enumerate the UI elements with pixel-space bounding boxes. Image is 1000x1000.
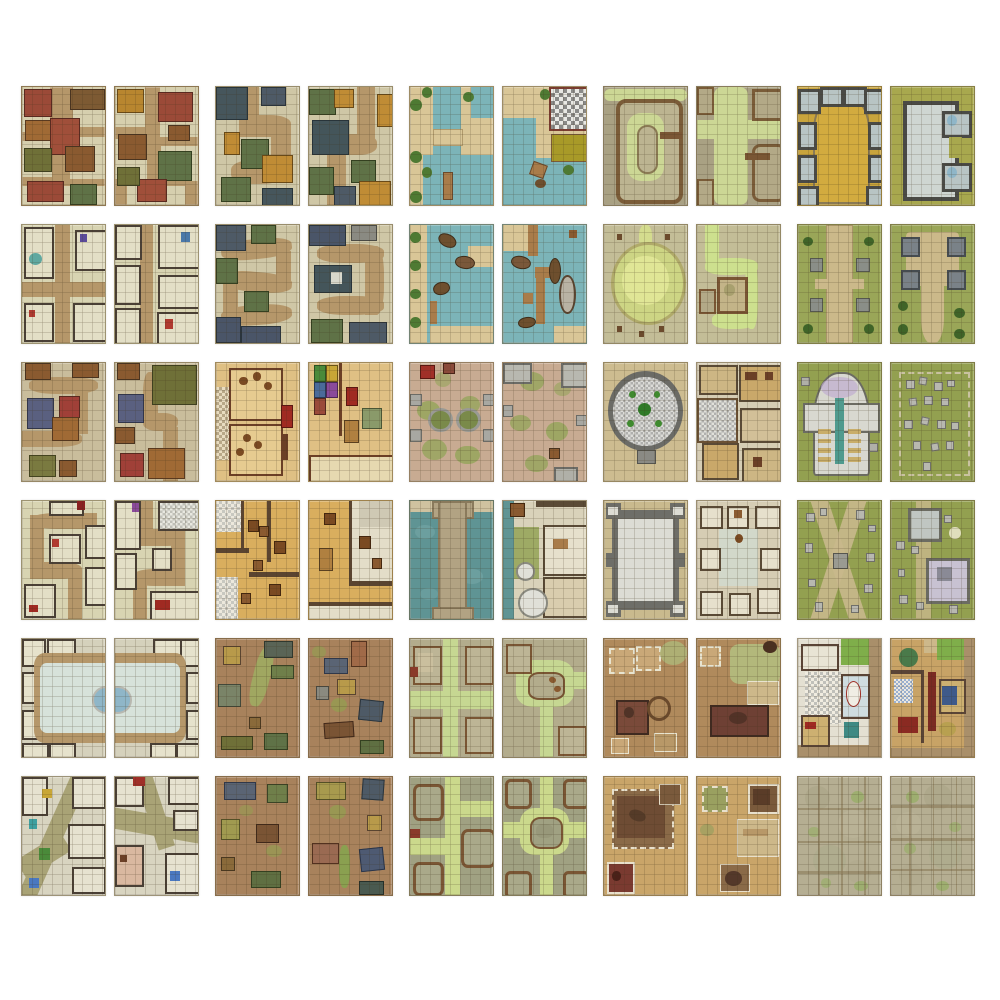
map-feature	[549, 258, 561, 284]
map-feature	[503, 501, 514, 619]
map-feature	[798, 841, 881, 843]
map-feature	[117, 89, 144, 112]
map-feature	[801, 715, 830, 747]
map-feature	[170, 871, 180, 880]
map-feature	[359, 181, 391, 206]
map-feature	[916, 602, 924, 610]
map-feature	[954, 329, 965, 340]
tile-r3c4-round-arena-right-panel	[696, 362, 781, 482]
map-feature	[216, 501, 241, 532]
tile-r5c4-ruined-farmstead	[603, 638, 781, 758]
map-feature	[760, 548, 781, 571]
map-feature	[80, 234, 87, 241]
tile-r2c1-town-interiors	[21, 224, 199, 344]
tile-r4c2-warehouse-right-panel	[308, 500, 393, 620]
map-feature	[422, 439, 447, 460]
map-feature	[241, 593, 251, 604]
map-feature	[901, 270, 920, 291]
tile-r6c4-sand-ruins	[603, 776, 781, 896]
map-feature	[798, 808, 881, 810]
map-feature	[740, 408, 781, 443]
map-feature	[700, 506, 722, 529]
map-feature	[891, 670, 924, 675]
tile-r4c5-graveyard-mausoleums	[797, 500, 975, 620]
map-feature	[569, 230, 576, 238]
map-feature	[436, 231, 458, 251]
map-feature	[326, 365, 338, 381]
map-feature	[702, 443, 739, 480]
map-feature	[117, 167, 141, 186]
map-feature	[700, 591, 722, 616]
tile-r6c4-sand-ruins-right-panel	[696, 776, 781, 896]
map-feature	[410, 151, 422, 163]
map-feature	[506, 644, 532, 674]
map-feature	[377, 94, 393, 127]
map-feature	[249, 717, 261, 730]
map-feature	[339, 845, 351, 887]
tile-grid	[21, 86, 975, 896]
map-feature	[241, 326, 281, 344]
map-feature	[896, 541, 905, 550]
map-feature	[239, 377, 247, 385]
tile-r2c3-dockyard	[409, 224, 587, 344]
map-feature	[461, 829, 494, 868]
map-feature	[536, 501, 586, 507]
map-feature	[465, 717, 494, 754]
map-feature	[264, 641, 293, 657]
map-feature	[821, 878, 831, 887]
map-feature	[262, 155, 292, 183]
tile-r1c3-canal-quarter-right-panel	[502, 86, 587, 206]
map-feature	[554, 326, 586, 343]
map-feature	[410, 260, 421, 271]
map-feature	[334, 186, 356, 206]
map-feature	[118, 394, 143, 423]
map-feature	[673, 605, 683, 613]
map-feature	[115, 427, 135, 444]
map-feature	[186, 710, 199, 740]
tile-r1c3-canal-quarter-left-panel	[409, 86, 494, 206]
map-feature	[269, 584, 281, 597]
map-feature	[309, 167, 334, 195]
map-feature	[609, 648, 635, 673]
map-feature	[848, 439, 861, 444]
tile-r2c2-serpentine-street	[215, 224, 393, 344]
map-feature	[413, 717, 442, 754]
map-feature	[904, 420, 913, 429]
map-feature	[909, 777, 911, 895]
map-feature	[869, 639, 881, 757]
map-feature	[868, 525, 876, 533]
tile-r2c4-cavern-pool-right-panel	[696, 224, 781, 344]
map-feature	[115, 308, 141, 344]
tile-r5c2-dirt-hamlet-left-panel	[215, 638, 300, 758]
map-feature	[606, 553, 616, 567]
tile-r6c1-mossy-crossroads	[21, 776, 199, 896]
map-feature	[947, 237, 966, 258]
map-feature	[798, 89, 821, 114]
map-feature	[528, 225, 538, 256]
map-feature	[68, 572, 81, 619]
map-feature	[510, 415, 532, 432]
map-feature	[267, 784, 287, 803]
map-feature	[271, 665, 295, 679]
map-feature	[851, 791, 864, 803]
map-feature	[801, 644, 838, 672]
map-feature	[281, 434, 288, 460]
map-feature	[410, 838, 447, 855]
tile-r3c2-tavern-inn-right-panel	[308, 362, 393, 482]
tile-r2c5-statue-garden-right-panel	[890, 224, 975, 344]
map-feature	[898, 324, 909, 335]
map-feature	[697, 87, 714, 115]
map-feature	[624, 707, 634, 718]
map-feature	[85, 525, 106, 560]
map-feature	[563, 165, 574, 176]
map-feature	[72, 867, 106, 895]
tile-r1c5-temple-courtyard-right-panel	[890, 86, 975, 206]
map-feature	[946, 441, 955, 450]
tile-r6c1-mossy-crossroads-left-panel	[21, 776, 106, 896]
map-feature	[443, 172, 453, 200]
map-feature	[372, 558, 382, 569]
map-feature	[947, 380, 955, 388]
map-feature	[856, 510, 865, 519]
map-feature	[558, 726, 587, 756]
map-feature	[697, 120, 780, 139]
map-feature	[259, 526, 269, 537]
map-feature	[29, 605, 38, 612]
map-feature	[158, 151, 192, 181]
map-feature	[714, 87, 749, 205]
map-feature	[505, 779, 533, 809]
tile-r4c1-town-interiors-curved	[21, 500, 199, 620]
tile-r3c2-tavern-inn-left-panel	[215, 362, 300, 482]
map-feature	[833, 553, 848, 569]
map-feature	[331, 698, 348, 712]
tile-r2c4-cavern-pool-left-panel	[603, 224, 688, 344]
map-feature	[942, 111, 971, 138]
map-feature	[432, 607, 474, 620]
map-feature	[810, 298, 824, 312]
map-feature	[410, 394, 422, 407]
tile-r5c5-manor-house	[797, 638, 975, 758]
map-feature	[158, 225, 199, 269]
map-feature	[152, 548, 173, 571]
map-feature	[559, 275, 575, 314]
map-feature	[627, 420, 634, 427]
map-feature	[251, 225, 276, 244]
map-feature	[806, 513, 815, 522]
map-feature	[413, 862, 444, 896]
map-feature	[763, 641, 776, 653]
map-feature	[432, 280, 451, 296]
map-feature	[29, 253, 42, 265]
map-feature	[765, 372, 773, 379]
map-feature	[803, 324, 813, 333]
map-feature	[410, 289, 421, 300]
tile-r1c5-temple-courtyard	[797, 86, 975, 206]
map-feature	[117, 363, 141, 380]
map-feature	[362, 408, 382, 429]
map-feature	[455, 446, 480, 465]
map-feature	[157, 312, 200, 344]
tile-r1c3-canal-quarter	[409, 86, 587, 206]
map-feature	[216, 577, 238, 619]
tile-r2c5-statue-garden-left-panel	[797, 224, 882, 344]
map-feature	[675, 553, 685, 567]
map-feature	[344, 420, 359, 443]
tile-r1c2-town-green-gold-roofs-right-panel	[308, 86, 393, 206]
map-feature	[312, 843, 339, 864]
map-feature	[894, 679, 912, 703]
map-feature	[216, 258, 238, 284]
map-feature	[165, 319, 173, 328]
map-feature	[729, 712, 747, 724]
map-feature	[921, 282, 944, 343]
map-feature	[253, 372, 261, 380]
map-feature	[712, 312, 755, 329]
map-feature	[942, 163, 971, 193]
map-feature	[221, 736, 253, 750]
map-feature	[820, 87, 844, 107]
map-feature	[798, 871, 881, 873]
map-feature	[848, 448, 861, 453]
map-feature	[608, 507, 618, 515]
map-feature	[617, 234, 622, 240]
map-feature	[757, 588, 781, 613]
tile-r4c1-town-interiors-curved-right-panel	[114, 500, 199, 620]
map-feature	[637, 450, 656, 464]
tile-r5c1-plaza-fountain	[21, 638, 199, 758]
map-feature	[309, 225, 346, 246]
map-feature	[608, 605, 618, 613]
map-feature	[868, 122, 882, 149]
tile-r1c1-town-red-roofs-left-panel	[21, 86, 106, 206]
map-feature	[629, 391, 636, 398]
map-feature	[660, 641, 687, 665]
map-feature	[864, 777, 866, 895]
map-feature	[256, 824, 280, 843]
map-feature	[841, 639, 869, 665]
map-feature	[410, 829, 420, 838]
tile-r4c5-graveyard-mausoleums-right-panel	[890, 500, 975, 620]
tile-r3c1-town-mixed-roofs-left-panel	[21, 362, 106, 482]
map-feature	[851, 605, 859, 613]
tile-r4c1-town-interiors-curved-left-panel	[21, 500, 106, 620]
map-feature	[173, 810, 199, 831]
map-feature	[430, 326, 493, 343]
map-feature	[700, 824, 713, 836]
map-feature	[314, 382, 326, 398]
tile-r3c3-ruined-street	[409, 362, 587, 482]
map-feature	[540, 89, 551, 100]
map-feature	[745, 372, 757, 379]
map-feature	[517, 316, 536, 330]
map-feature	[463, 92, 474, 103]
map-feature	[420, 588, 438, 600]
tile-r6c5-flagstone-field-left-panel	[797, 776, 882, 896]
map-feature	[954, 308, 965, 319]
map-feature	[264, 733, 288, 749]
map-feature	[866, 553, 875, 562]
map-feature	[458, 801, 493, 818]
map-feature	[908, 508, 942, 542]
map-feature	[951, 422, 959, 430]
map-feature	[72, 363, 99, 378]
map-feature	[540, 850, 553, 895]
map-feature	[798, 155, 817, 182]
map-feature	[316, 686, 330, 700]
tile-r6c3-sewer-octagon-left-panel	[409, 776, 494, 896]
map-feature	[410, 191, 422, 203]
tile-r5c1-plaza-fountain-left-panel	[21, 638, 106, 758]
map-feature	[52, 539, 59, 547]
map-feature	[218, 684, 242, 707]
map-feature	[317, 296, 383, 315]
map-feature	[435, 372, 452, 386]
map-feature	[805, 722, 817, 729]
map-feature	[158, 275, 199, 310]
tile-r5c3-sewer-cross-left-panel	[409, 638, 494, 758]
map-feature	[150, 743, 177, 758]
tile-r3c4-round-arena-left-panel	[603, 362, 688, 482]
sheet-title: battle-map-tile-sheet	[0, 21, 1, 22]
map-feature	[930, 443, 939, 452]
map-feature	[569, 672, 586, 689]
map-feature	[525, 455, 548, 472]
tile-r6c4-sand-ruins-left-panel	[603, 776, 688, 896]
map-feature	[899, 864, 924, 885]
tile-r2c1-town-interiors-left-panel	[21, 224, 106, 344]
tile-r2c2-serpentine-street-left-panel	[215, 224, 300, 344]
map-feature	[471, 87, 493, 118]
tile-r1c5-temple-courtyard-left-panel	[797, 86, 882, 206]
map-feature	[868, 155, 882, 182]
map-feature	[612, 871, 620, 880]
map-feature	[536, 277, 545, 324]
map-feature	[665, 234, 670, 240]
tile-r1c2-town-green-gold-roofs	[215, 86, 393, 206]
map-feature	[551, 134, 587, 162]
map-feature	[351, 160, 376, 183]
map-feature	[818, 429, 831, 434]
tile-r5c1-plaza-fountain-right-panel	[114, 638, 199, 758]
map-feature	[422, 167, 433, 178]
map-feature	[70, 184, 97, 205]
map-feature	[924, 639, 937, 653]
map-feature	[420, 365, 435, 379]
map-feature	[152, 365, 197, 405]
map-feature	[334, 89, 354, 108]
map-feature	[891, 805, 974, 807]
map-feature	[430, 301, 437, 325]
map-feature	[891, 869, 974, 871]
map-feature	[216, 387, 229, 460]
map-feature	[659, 326, 664, 332]
map-feature	[216, 87, 248, 120]
map-feature	[223, 646, 242, 665]
map-feature	[410, 232, 421, 243]
map-feature	[639, 331, 644, 337]
map-feature	[936, 881, 949, 892]
map-feature	[367, 815, 382, 831]
map-feature	[148, 448, 185, 480]
map-feature	[546, 422, 568, 441]
tile-r4c3-stone-bridge-right-panel	[502, 500, 587, 620]
map-feature	[483, 429, 494, 442]
tile-r5c5-manor-house-right-panel	[890, 638, 975, 758]
tile-r6c2-dirt-hamlet-south-right-panel	[308, 776, 393, 896]
map-feature	[937, 420, 946, 429]
map-feature	[415, 525, 435, 539]
map-feature	[433, 129, 463, 145]
map-feature	[503, 822, 523, 839]
map-feature	[29, 455, 56, 477]
map-feature	[248, 520, 260, 533]
map-feature	[949, 605, 958, 614]
map-feature	[433, 87, 461, 158]
map-feature	[120, 453, 144, 477]
tile-r1c1-town-red-roofs-right-panel	[114, 86, 199, 206]
map-feature	[939, 722, 956, 736]
map-feature	[456, 408, 480, 432]
map-feature	[820, 508, 828, 516]
map-feature	[803, 237, 813, 246]
map-feature	[70, 89, 105, 110]
map-feature	[358, 699, 384, 722]
tile-r3c3-ruined-street-left-panel	[409, 362, 494, 482]
map-feature	[947, 270, 966, 291]
map-feature	[49, 743, 76, 758]
map-feature	[864, 89, 882, 114]
map-feature	[155, 600, 170, 609]
tile-r1c4-dungeon-hall-green-left-panel	[603, 86, 688, 206]
map-feature	[349, 581, 392, 586]
map-feature	[717, 277, 748, 314]
map-feature	[617, 326, 622, 332]
map-feature	[326, 382, 338, 398]
map-feature	[899, 648, 917, 667]
map-feature	[262, 188, 292, 206]
map-feature	[445, 777, 460, 895]
map-feature	[753, 457, 761, 466]
map-feature	[637, 125, 658, 174]
map-feature	[221, 857, 235, 871]
map-feature	[906, 380, 915, 389]
map-feature	[536, 824, 553, 838]
map-feature	[346, 387, 359, 407]
map-feature	[724, 284, 736, 296]
map-feature	[77, 501, 85, 510]
map-feature	[115, 265, 141, 304]
map-feature	[798, 745, 881, 757]
map-feature	[25, 363, 50, 380]
map-feature	[42, 789, 52, 798]
map-feature	[59, 460, 78, 477]
map-feature	[85, 567, 106, 606]
tile-r4c3-stone-bridge-left-panel	[409, 500, 494, 620]
map-feature	[133, 777, 145, 786]
map-feature	[891, 748, 974, 757]
map-feature	[815, 279, 865, 288]
map-feature	[616, 700, 650, 735]
map-feature	[274, 541, 286, 554]
map-feature	[949, 137, 962, 158]
map-feature	[752, 89, 781, 121]
map-feature	[745, 153, 770, 160]
map-feature	[956, 777, 958, 895]
